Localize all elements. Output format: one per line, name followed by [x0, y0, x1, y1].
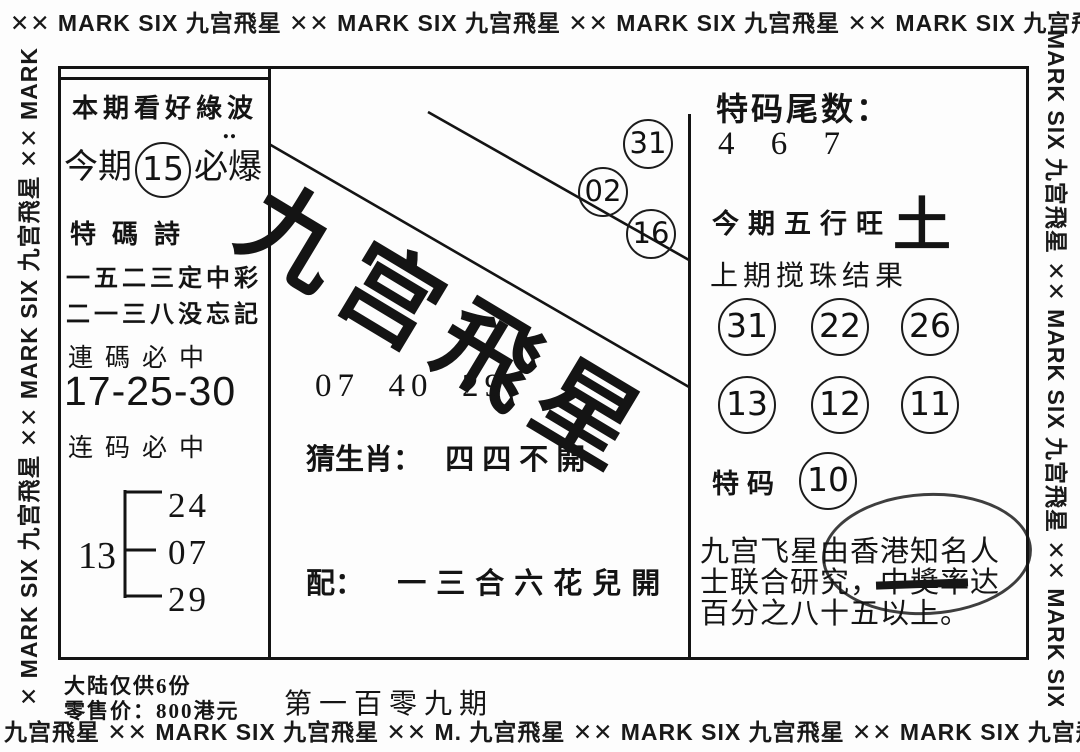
combo-numbers: 17-25-30 — [64, 368, 236, 415]
footer-note-2: 零售价：800港元 — [64, 695, 240, 725]
tree-branch-3: 29 — [168, 580, 209, 620]
element-label: 今期五行旺 — [712, 202, 892, 241]
lottery-sheet: ✕✕ MARK SIX 九宫飛星 ✕✕ MARK SIX 九宫飛星 ✕✕ MAR… — [0, 0, 1080, 752]
draw-ball: 22 — [811, 298, 869, 356]
border-right: MARK SIX 九宫飛星 ✕✕ MARK SIX 九宫飛星 ✕✕ MARK S… — [1030, 30, 1080, 706]
draw-ball: 12 — [811, 376, 869, 434]
pair-row: 配： 一三合六花兒開 — [306, 560, 670, 602]
tree-root: 13 — [78, 534, 116, 578]
center-numbers-row: 07 40 29 — [315, 368, 507, 405]
tail-label: 特码尾数： — [716, 84, 891, 130]
hot-number-circle: 15 — [135, 142, 191, 198]
border-left: ✕ MARK SIX 九宫飛星 ✕✕ MARK SIX 九宫飛星 ✕✕ MARK… — [0, 46, 55, 706]
border-right-text: MARK SIX 九宫飛星 ✕✕ MARK SIX 九宫飛星 ✕✕ MARK S… — [1036, 30, 1076, 706]
last-draw-label: 上期搅珠结果 — [710, 254, 908, 294]
hot-tip-row: 今期15必爆 — [64, 140, 262, 196]
hot-suffix: 必爆 — [194, 149, 262, 186]
poem-line-2: 二一三八没忘記 — [66, 294, 262, 329]
draw-ball: 31 — [718, 298, 776, 356]
floating-circle-3: 16 — [626, 209, 676, 259]
element-value: 土 — [893, 178, 951, 262]
border-left-text: ✕ MARK SIX 九宫飛星 ✕✕ MARK SIX 九宫飛星 ✕✕ MARK… — [9, 46, 49, 706]
divider-left-center — [268, 69, 271, 658]
floating-circle-1: 31 — [623, 119, 673, 169]
poem-title: 特碼詩 — [70, 214, 196, 251]
issue-number: 第一百零九期 — [284, 682, 494, 722]
special-ball: 10 — [799, 452, 857, 510]
special-label: 特码 — [712, 462, 782, 501]
zodiac-label: 猜生肖： — [306, 444, 422, 476]
hot-prefix: 今期 — [64, 149, 132, 186]
pair-label: 配： — [306, 568, 364, 600]
tail-numbers: 4 6 7 — [718, 126, 854, 163]
zodiac-row: 猜生肖： 四四不開 — [306, 436, 593, 478]
combo-title-2: 连码必中 — [68, 428, 216, 464]
pair-value: 一三合六花兒開 — [397, 568, 670, 600]
tree-branch-2: 07 — [168, 533, 209, 573]
leftcol-top-rule — [61, 77, 271, 80]
divider-center-right — [688, 114, 691, 658]
tree-branch-1: 24 — [168, 486, 209, 526]
zodiac-value: 四四不開 — [445, 444, 593, 476]
draw-ball: 26 — [901, 298, 959, 356]
floating-circle-2: 02 — [578, 167, 628, 217]
draw-ball: 11 — [901, 376, 959, 434]
border-top: ✕✕ MARK SIX 九宫飛星 ✕✕ MARK SIX 九宫飛星 ✕✕ MAR… — [10, 0, 1080, 46]
draw-ball: 13 — [718, 376, 776, 434]
